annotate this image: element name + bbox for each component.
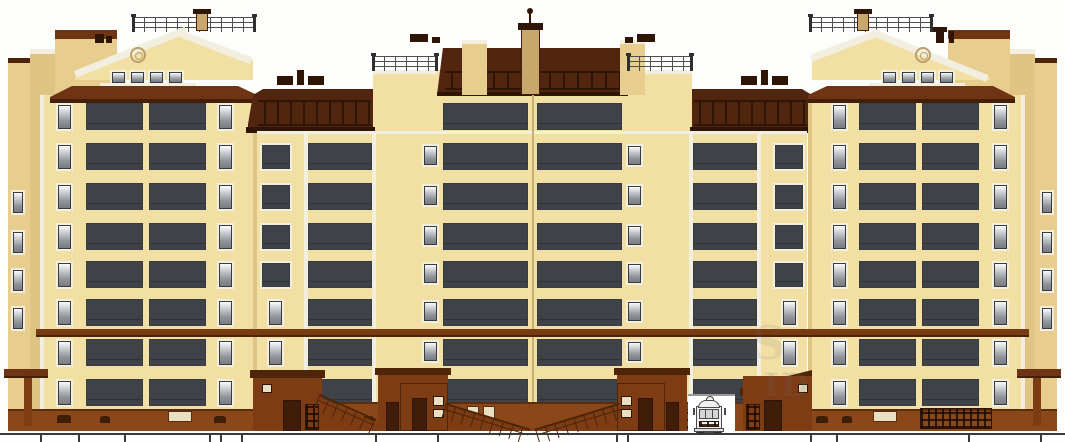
rail-post [395,56,396,71]
mansard-batten [712,102,714,124]
pier-window [424,264,437,283]
plinth-top-line [8,409,257,411]
porch-window [433,396,444,406]
end-post [809,16,812,32]
balcony-guard-line [444,319,527,320]
balcony-guard-line [150,203,205,204]
balcony-window [308,183,372,210]
balcony-window [922,143,979,170]
mansard-batten [605,73,607,88]
porch-window [621,396,632,406]
truck-icon-windshield [699,409,719,419]
rail [554,422,560,438]
narrow-window [58,301,71,325]
attic-window [131,72,144,83]
balcony-window [537,261,622,288]
balcony-guard-line [923,243,978,244]
balcony-guard-line [694,319,756,320]
rail [133,17,255,18]
rail-post [639,56,640,71]
entrance-door [283,400,301,431]
rail-post [232,17,233,32]
narrow-window [58,225,71,249]
rail [583,414,589,430]
attic-window [150,72,163,83]
balcony-window [922,379,979,406]
truck-icon-roof [698,400,720,408]
basement-light-window [873,411,897,422]
narrow-window [58,145,71,169]
survey-tick [627,433,629,442]
mansard-batten [777,102,779,124]
right-chimney-cap [854,9,872,14]
balcony-guard-line [309,359,371,360]
balcony-guard-line [87,319,142,320]
mansard-batten [591,73,593,88]
balcony-guard-line [87,399,142,400]
pier-window [424,226,437,245]
right-wing-window [1042,192,1052,213]
balcony-window [922,103,979,130]
narrow-window [58,341,71,365]
balcony-window [693,223,757,250]
balcony-window [149,143,206,170]
rail [611,405,617,421]
narrow-window [219,105,232,129]
mansard-batten [563,73,565,88]
narrow-window [219,145,232,169]
right-tower-pilaster [1021,95,1025,411]
ground-line [0,433,1065,435]
survey-tick [40,433,42,442]
triple-window [775,185,803,209]
survey-tick [810,433,812,442]
balcony-guard-line [150,243,205,244]
survey-tick [220,433,222,442]
balcony-window [149,299,206,326]
balcony-window [86,379,143,406]
balcony-guard-line [923,203,978,204]
balcony-window [308,261,372,288]
narrow-window [994,301,1007,325]
end-post [627,55,630,71]
mansard-batten [342,102,344,124]
balcony-window [308,299,372,326]
balcony-guard-line [694,243,756,244]
balcony-guard-line [776,281,802,282]
balcony-window [693,143,757,170]
balcony-window [693,183,757,210]
rail-post [406,56,407,71]
triple-window [775,263,803,287]
balcony-guard-line [694,359,756,360]
pier-window [424,186,437,205]
narrow-window [833,145,846,169]
balcony-window [859,223,916,250]
right-tower-edge-shade [808,95,812,411]
triple-window [775,225,803,249]
left-tower-pilaster [40,95,44,411]
lattice-grill [746,404,760,430]
survey-tick [124,433,126,442]
balcony-window [693,299,757,326]
balcony-guard-line [150,319,205,320]
narrow-window [994,225,1007,249]
mansard-batten [507,73,509,88]
rail-post [188,17,189,32]
narrow-window [269,301,282,325]
entrance-porch-canopy [375,368,451,375]
right-roof-stub [949,31,954,43]
roof-stub [761,70,768,85]
rail [573,417,579,433]
narrow-window [994,341,1007,365]
truck-icon-dome [706,396,714,401]
mansard-batten [329,102,331,124]
rail-post [854,17,855,32]
roof-stub [637,34,655,42]
balcony-guard-line [694,281,756,282]
left-chimney [196,12,208,31]
mansard-batten [493,73,495,88]
mansard-batten [355,102,357,124]
attic-window [169,72,182,83]
balcony-window [443,183,528,210]
belt-course-shadow [36,335,1029,337]
narrow-window [219,185,232,209]
mansard-batten [751,102,753,124]
balcony-guard-line [860,399,915,400]
narrow-window [219,341,232,365]
balcony-guard-line [150,281,205,282]
right-roof-stub-cap [933,27,947,32]
rail [810,17,932,18]
end-post [435,55,438,71]
mansard-batten [738,102,740,124]
roof-stub [741,76,757,85]
pier-window [628,342,641,361]
balcony-window [922,183,979,210]
left-roof-stub [106,36,112,43]
terrace-railing [628,56,692,71]
rail [810,27,932,28]
rail-post [166,17,167,32]
balcony-window [86,143,143,170]
rail [592,411,598,427]
entrance-porch-canopy [614,368,690,375]
balcony-window [443,143,528,170]
entrance-door [666,402,679,431]
balcony-window [537,143,622,170]
balcony-window [537,339,622,366]
balcony-window [149,183,206,210]
balcony-window [537,223,622,250]
survey-tick [437,433,439,442]
balcony-guard-line [87,163,142,164]
mansard-batten [725,102,727,124]
right-parapet-coping [948,30,1010,39]
attic-window [112,72,125,83]
pier-window [628,186,641,205]
balcony-window [537,299,622,326]
balcony-guard-line [776,243,802,244]
balcony-window [86,183,143,210]
balcony-window [859,299,916,326]
central-chimney-cap [518,23,543,30]
balcony-guard-line [860,319,915,320]
balcony-window [86,339,143,366]
balcony-guard-line [776,163,802,164]
rail-post [887,17,888,32]
roof-stub [410,34,428,42]
basement-window [842,416,852,423]
balcony-guard-line [87,243,142,244]
end-post [372,55,375,71]
truck-icon-mirror [724,408,726,415]
roof-stub [432,37,440,43]
entrance-door [638,398,653,431]
lattice-grill [920,408,992,429]
balcony-guard-line [150,163,205,164]
attic-window [902,72,915,83]
balcony-guard-line [309,281,371,282]
mansard-line [258,124,371,126]
right-wing-window [1042,308,1052,329]
mansard-batten [451,73,453,88]
watermark-text: S [752,316,785,370]
balcony-guard-line [263,163,289,164]
survey-tick [616,433,618,442]
narrow-window [994,145,1007,169]
balcony-window [149,261,206,288]
building-elevation: SID [0,0,1065,442]
truck-icon-grille [699,421,719,427]
balcony-guard-line [444,123,527,124]
balcony-guard-line [860,163,915,164]
rail-post [384,56,385,71]
narrow-window [833,105,846,129]
balcony-guard-line [87,281,142,282]
narrow-window [833,263,846,287]
balcony-guard-line [538,399,621,400]
balcony-guard-line [923,163,978,164]
balcony-guard-line [923,281,978,282]
balcony-window [86,103,143,130]
truck-icon-pillar [712,409,713,419]
porch-window [262,384,272,393]
triple-window [262,263,290,287]
penthouse-block [462,44,487,95]
rail-post [661,56,662,71]
roof-stub [297,70,304,85]
balcony-guard-line [150,399,205,400]
mansard-batten [699,102,701,124]
rail-post [898,17,899,32]
narrow-window [219,263,232,287]
balcony-window [859,339,916,366]
end-post [253,16,256,32]
narrow-window [994,381,1007,405]
balcony-window [922,339,979,366]
narrow-window [58,381,71,405]
mansard-batten [290,102,292,124]
balcony-guard-line [87,123,142,124]
roof-stub [308,76,324,85]
narrow-window [833,381,846,405]
end-post-cap [929,14,934,17]
triple-window [262,185,290,209]
rail [133,27,255,28]
balcony-window [922,223,979,250]
narrow-window [994,263,1007,287]
balcony-window [859,143,916,170]
side-canopy-post [1033,378,1041,426]
balcony-guard-line [538,203,621,204]
mansard-batten [264,102,266,124]
balcony-guard-line [309,243,371,244]
narrow-window [219,381,232,405]
rail-post [221,17,222,32]
narrow-window [994,185,1007,209]
right-roof-stub [936,31,944,43]
triple-window [262,145,290,169]
narrow-window [219,225,232,249]
balcony-guard-line [263,281,289,282]
central-chimney [521,26,540,95]
left-wing-window [13,308,23,329]
balcony-guard-line [538,319,621,320]
terrace-railing [373,56,437,71]
mansard-batten [549,73,551,88]
balcony-guard-line [87,359,142,360]
roof-stub [772,76,788,85]
survey-tick [209,433,211,442]
balcony-guard-line [538,359,621,360]
left-wing-window [13,270,23,291]
balcony-window [922,299,979,326]
right-tower-roof-railing [810,17,932,32]
rail-post [243,17,244,32]
end-post-cap [626,53,631,56]
mansard-batten [277,102,279,124]
survey-tick [1040,433,1042,442]
rail [535,428,541,442]
balcony-window [537,103,622,130]
rail-post [920,17,921,32]
end-post [690,55,693,71]
medallion-ornament [920,52,928,60]
left-chimney-cap [193,9,211,14]
end-post-cap [808,14,813,17]
balcony-guard-line [538,243,621,244]
narrow-window [219,301,232,325]
survey-tick [241,433,243,442]
balcony-window [443,261,528,288]
balcony-guard-line [776,203,802,204]
balcony-guard-line [309,319,371,320]
pier-window [628,264,641,283]
end-post-cap [434,53,439,56]
left-wing-window [13,192,23,213]
narrow-window [833,301,846,325]
balcony-window [693,261,757,288]
narrow-window [833,341,846,365]
basement-window [57,415,71,423]
balcony-window [308,339,372,366]
balcony-guard-line [309,203,371,204]
balcony-window [443,339,528,366]
left-tower-roof-railing [133,17,255,32]
balcony-guard-line [860,243,915,244]
right-chimney [857,12,869,31]
balcony-guard-line [860,281,915,282]
rail-post [672,56,673,71]
mansard-batten [316,102,318,124]
survey-tick [375,433,377,442]
entrance-porch-canopy [250,370,325,378]
balcony-guard-line [538,163,621,164]
medallion-ornament [135,52,143,60]
attic-window [883,72,896,83]
survey-tick [968,433,970,442]
balcony-window [149,103,206,130]
center-pilaster [372,134,376,403]
pier-window [424,302,437,321]
balcony-window [443,299,528,326]
narrow-window [58,263,71,287]
roof-stub [277,76,293,85]
end-post-cap [371,53,376,56]
end-post-cap [252,14,257,17]
rail-post [683,56,684,71]
balcony-guard-line [923,123,978,124]
rail [133,22,255,23]
rail-post [155,17,156,32]
balcony-window [86,261,143,288]
rail-post [909,17,910,32]
pier-window [424,146,437,165]
balcony-window [149,339,206,366]
basement-window [100,416,110,423]
rail-post [650,56,651,71]
balcony-window [86,223,143,250]
balcony-window [308,223,372,250]
roof-stub [625,37,633,43]
left-wing-window [13,232,23,253]
rail-post [821,17,822,32]
mansard-batten [803,102,805,124]
end-post-cap [131,14,136,17]
balcony-guard-line [923,359,978,360]
pier-window [628,146,641,165]
pier-window [628,302,641,321]
triple-window [262,225,290,249]
narrow-window [833,185,846,209]
balcony-guard-line [538,281,621,282]
balcony-guard-line [444,281,527,282]
balcony-guard-line [150,123,205,124]
balcony-window [859,379,916,406]
chimney-finial-ball [527,8,533,14]
rail-post [843,17,844,32]
right-wing-window [1042,270,1052,291]
balcony-guard-line [87,203,142,204]
balcony-window [443,223,528,250]
side-canopy-post [24,378,32,426]
balcony-guard-line [263,203,289,204]
balcony-window [149,379,206,406]
truck-icon-mirror [693,408,695,415]
